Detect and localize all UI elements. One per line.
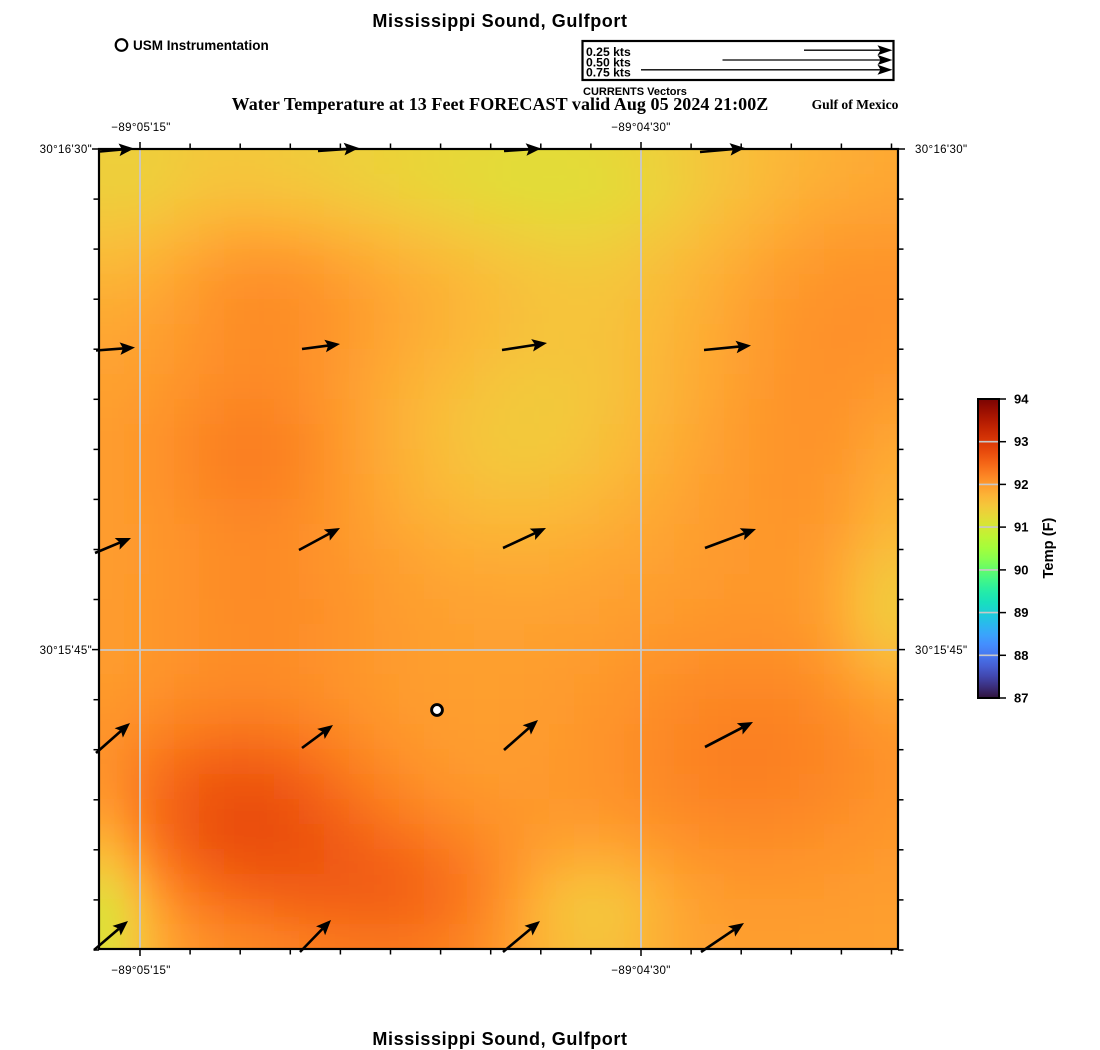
svg-text:30°15'45": 30°15'45" (915, 645, 967, 657)
svg-text:−89°04'30": −89°04'30" (611, 965, 670, 977)
svg-text:Temp (F): Temp (F) (1041, 517, 1057, 578)
svg-text:Mississippi Sound, Gulfport: Mississippi Sound, Gulfport (372, 1029, 627, 1049)
svg-text:92: 92 (1014, 477, 1028, 492)
svg-text:−89°05'15": −89°05'15" (111, 122, 170, 134)
svg-text:90: 90 (1014, 562, 1028, 577)
svg-text:94: 94 (1014, 392, 1029, 407)
svg-text:Gulf of Mexico: Gulf of Mexico (812, 97, 899, 112)
svg-text:87: 87 (1014, 691, 1028, 706)
svg-text:30°16'30": 30°16'30" (915, 144, 967, 156)
svg-text:−89°05'15": −89°05'15" (111, 965, 170, 977)
svg-text:91: 91 (1014, 520, 1028, 535)
svg-text:30°15'45": 30°15'45" (40, 645, 92, 657)
svg-text:Water Temperature at 13 Feet F: Water Temperature at 13 Feet FORECAST va… (232, 94, 769, 114)
svg-text:88: 88 (1014, 648, 1028, 663)
svg-text:0.75 kts: 0.75 kts (586, 66, 631, 80)
svg-text:93: 93 (1014, 434, 1028, 449)
svg-text:−89°04'30": −89°04'30" (611, 122, 670, 134)
svg-text:USM Instrumentation: USM Instrumentation (133, 38, 269, 53)
svg-text:Mississippi Sound, Gulfport: Mississippi Sound, Gulfport (372, 11, 627, 31)
svg-text:89: 89 (1014, 605, 1028, 620)
svg-text:30°16'30": 30°16'30" (40, 144, 92, 156)
